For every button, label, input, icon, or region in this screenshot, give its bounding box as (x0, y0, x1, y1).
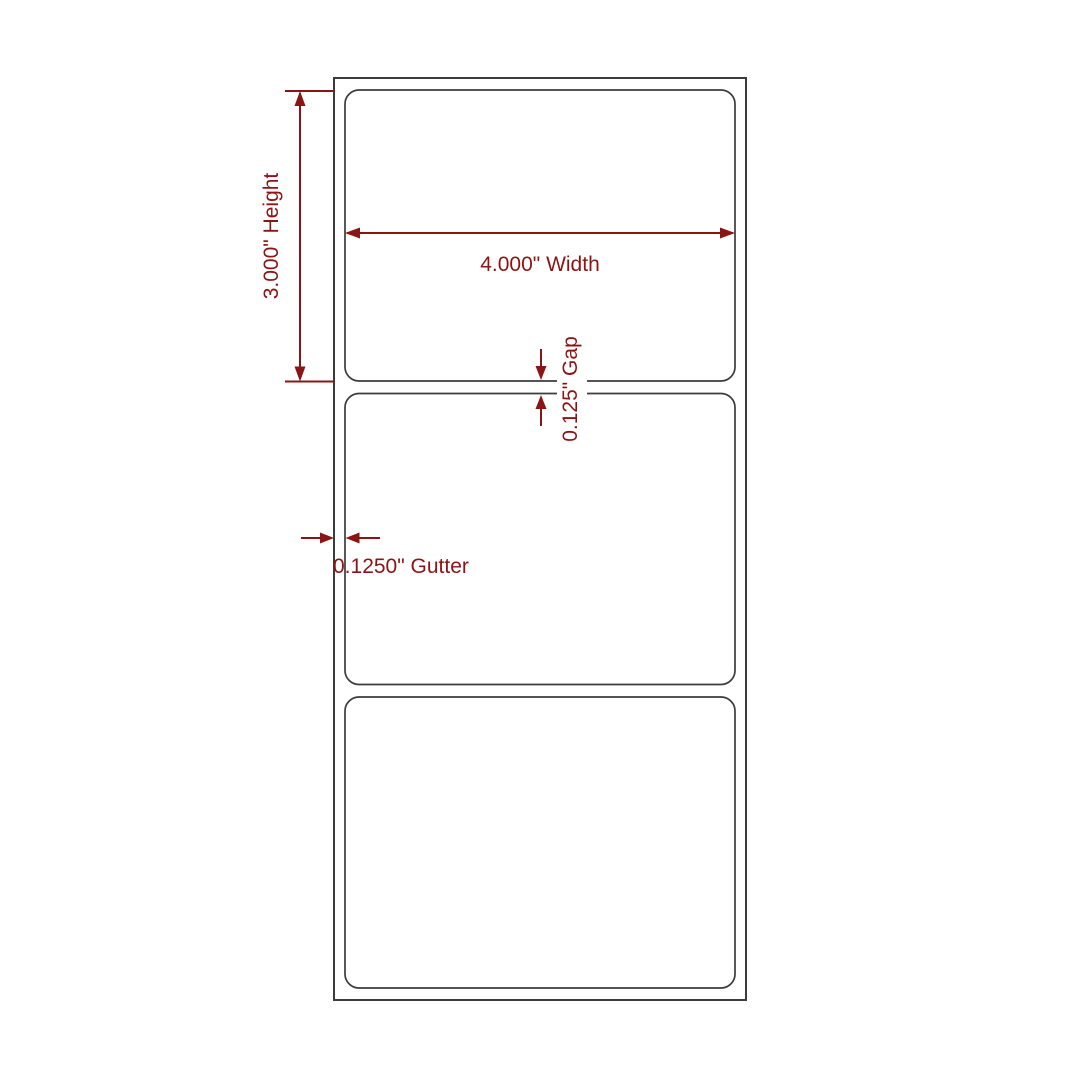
height-dimension-label: 3.000" Height (260, 173, 283, 300)
page: { "colors": { "dimension": "#8B1414", "o… (0, 0, 1080, 1080)
background (0, 0, 1080, 1080)
gutter-dimension-label: 0.1250" Gutter (333, 555, 469, 578)
gap-dimension-label: 0.125" Gap (559, 336, 582, 442)
width-dimension-label: 4.000" Width (480, 253, 600, 276)
diagram-canvas: 3.000" Height 4.000" Width 0.125" Gap 0.… (0, 0, 1080, 1080)
